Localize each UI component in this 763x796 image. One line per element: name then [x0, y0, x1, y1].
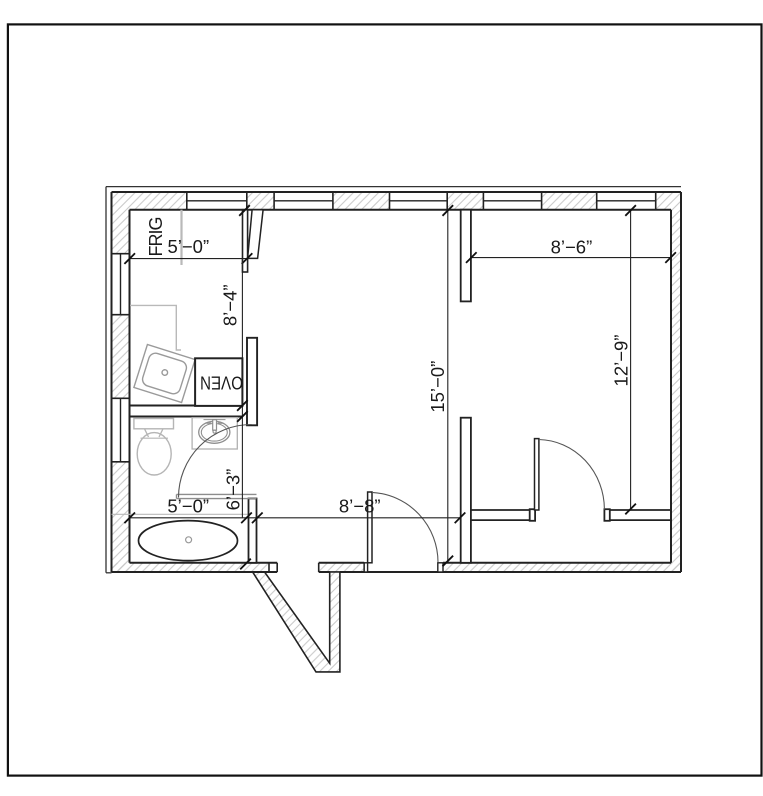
svg-text:OVEN: OVEN	[200, 372, 243, 393]
svg-text:6’−3”: 6’−3”	[223, 469, 244, 511]
svg-text:5’−0”: 5’−0”	[167, 236, 209, 257]
svg-text:8’−6”: 8’−6”	[551, 236, 593, 257]
svg-text:8’−8”: 8’−8”	[339, 496, 381, 517]
svg-text:8’−4”: 8’−4”	[220, 284, 241, 326]
svg-text:12’−9”: 12’−9”	[611, 335, 632, 387]
svg-text:5’−0”: 5’−0”	[167, 496, 209, 517]
svg-text:FRIG: FRIG	[146, 218, 166, 257]
svg-text:15’−0”: 15’−0”	[427, 361, 448, 413]
